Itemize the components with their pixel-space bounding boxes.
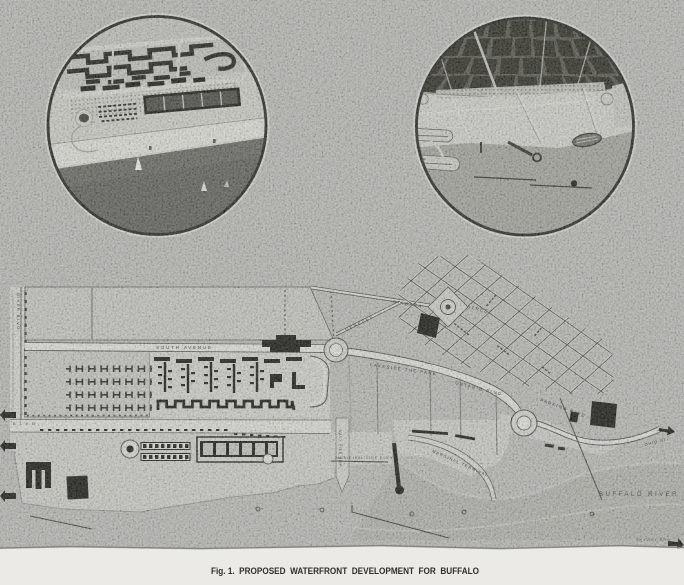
svg-text:Fig. 1. PROPOSED WATERFRONT: Fig. 1. PROPOSED WATERFRONT DEVELOPMENT …: [211, 566, 479, 576]
